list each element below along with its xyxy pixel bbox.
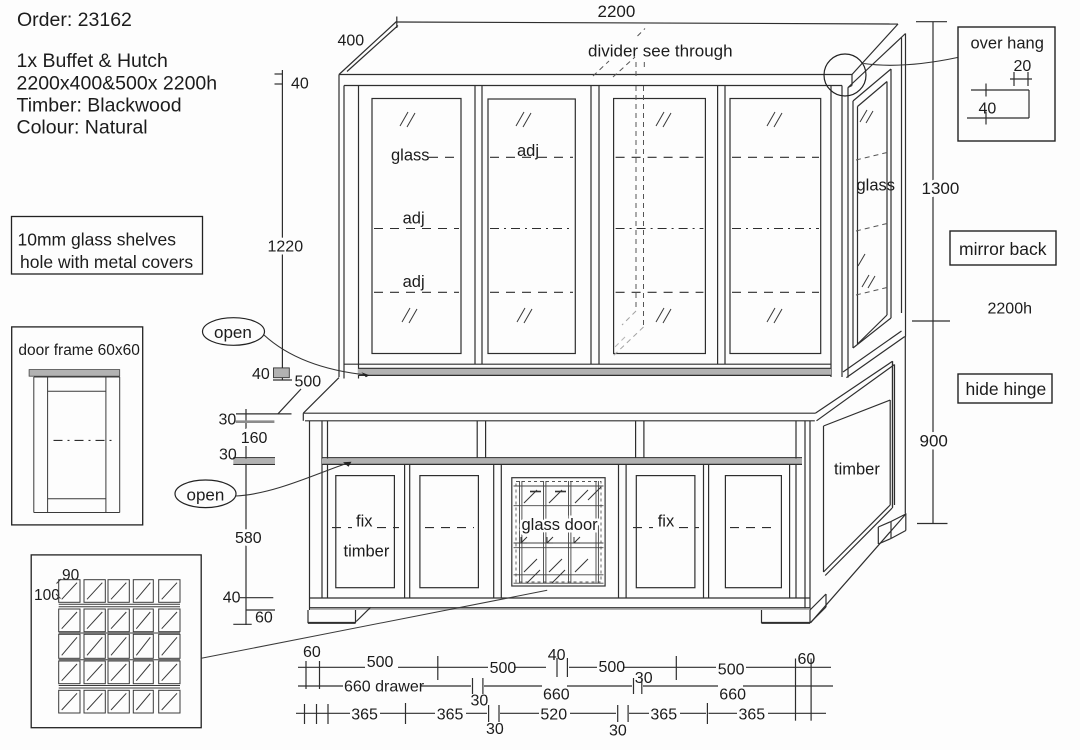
svg-text:Colour: Natural: Colour: Natural xyxy=(17,117,148,139)
svg-text:400: 400 xyxy=(338,33,365,50)
svg-text:adj: adj xyxy=(403,273,425,291)
svg-text:over hang: over hang xyxy=(971,35,1044,53)
svg-text:1x Buffet & Hutch: 1x Buffet & Hutch xyxy=(17,50,168,72)
svg-text:30: 30 xyxy=(635,670,653,687)
svg-text:60: 60 xyxy=(303,644,321,661)
svg-text:160: 160 xyxy=(241,430,268,447)
svg-text:365: 365 xyxy=(739,707,766,724)
svg-text:2200h: 2200h xyxy=(988,301,1033,318)
svg-text:30: 30 xyxy=(219,412,237,429)
svg-text:30: 30 xyxy=(471,693,489,710)
svg-text:660: 660 xyxy=(543,687,570,704)
svg-text:365: 365 xyxy=(437,707,464,724)
svg-text:365: 365 xyxy=(650,707,677,724)
svg-text:adj: adj xyxy=(517,142,539,160)
svg-text:580: 580 xyxy=(235,530,262,547)
svg-text:2200x400&500x 2200h: 2200x400&500x 2200h xyxy=(17,73,218,95)
svg-text:divider see through: divider see through xyxy=(588,42,733,61)
svg-text:mirror back: mirror back xyxy=(959,239,1047,259)
svg-text:660 drawer: 660 drawer xyxy=(344,679,425,696)
svg-text:10mm glass shelves: 10mm glass shelves xyxy=(18,230,177,250)
svg-text:500: 500 xyxy=(718,662,745,679)
svg-text:100: 100 xyxy=(34,587,60,604)
svg-text:30: 30 xyxy=(609,723,627,740)
svg-text:1300: 1300 xyxy=(922,179,960,198)
svg-text:glass: glass xyxy=(857,177,896,195)
svg-text:timber: timber xyxy=(344,543,390,561)
svg-text:2200: 2200 xyxy=(598,2,636,21)
svg-text:Order: 23162: Order: 23162 xyxy=(17,9,132,31)
svg-text:timber: timber xyxy=(834,461,880,479)
svg-text:hide hinge: hide hinge xyxy=(966,379,1047,399)
svg-text:20: 20 xyxy=(1014,58,1032,75)
svg-text:40: 40 xyxy=(979,101,997,118)
svg-text:90: 90 xyxy=(62,567,80,584)
svg-text:500: 500 xyxy=(367,654,394,671)
svg-text:Timber: Blackwood: Timber: Blackwood xyxy=(17,95,182,117)
svg-text:open: open xyxy=(214,323,252,342)
svg-text:1220: 1220 xyxy=(268,239,304,256)
svg-text:40: 40 xyxy=(252,366,270,383)
svg-text:fix: fix xyxy=(356,513,373,531)
svg-text:500: 500 xyxy=(490,660,517,677)
svg-text:60: 60 xyxy=(798,651,816,668)
svg-text:30: 30 xyxy=(219,447,237,464)
svg-text:adj: adj xyxy=(403,209,425,227)
svg-text:30: 30 xyxy=(486,721,504,738)
svg-text:500: 500 xyxy=(295,374,322,391)
svg-text:hole with metal covers: hole with metal covers xyxy=(20,252,193,272)
svg-text:40: 40 xyxy=(291,76,309,93)
svg-text:365: 365 xyxy=(351,707,378,724)
svg-text:60: 60 xyxy=(255,609,273,626)
svg-text:520: 520 xyxy=(540,707,567,724)
svg-text:40: 40 xyxy=(223,590,241,607)
svg-text:glass: glass xyxy=(391,147,430,165)
svg-text:glass door: glass door xyxy=(522,516,599,534)
svg-text:fix: fix xyxy=(658,513,675,531)
svg-text:660: 660 xyxy=(719,687,746,704)
svg-text:40: 40 xyxy=(548,647,566,664)
svg-text:open: open xyxy=(187,486,225,505)
svg-text:door frame 60x60: door frame 60x60 xyxy=(18,342,140,359)
svg-text:900: 900 xyxy=(920,432,948,451)
svg-text:500: 500 xyxy=(599,659,626,676)
